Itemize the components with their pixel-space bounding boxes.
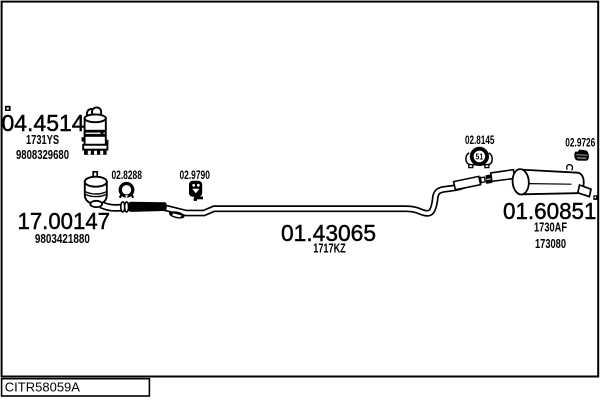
svg-text:02.8288: 02.8288 [111,168,142,182]
svg-text:173080: 173080 [535,237,566,251]
svg-text:CITR58059A: CITR58059A [5,379,80,394]
svg-text:02.9790: 02.9790 [179,168,210,182]
svg-text:9808329680: 9808329680 [16,148,69,162]
svg-text:02.9726: 02.9726 [565,136,595,150]
svg-text:51: 51 [476,151,484,161]
svg-text:1717KZ: 1717KZ [313,242,346,256]
svg-text:9803421880: 9803421880 [35,231,90,246]
svg-text:1730AF: 1730AF [534,221,567,235]
svg-text:02.8145: 02.8145 [465,133,495,147]
svg-text:1731YS: 1731YS [26,133,59,147]
